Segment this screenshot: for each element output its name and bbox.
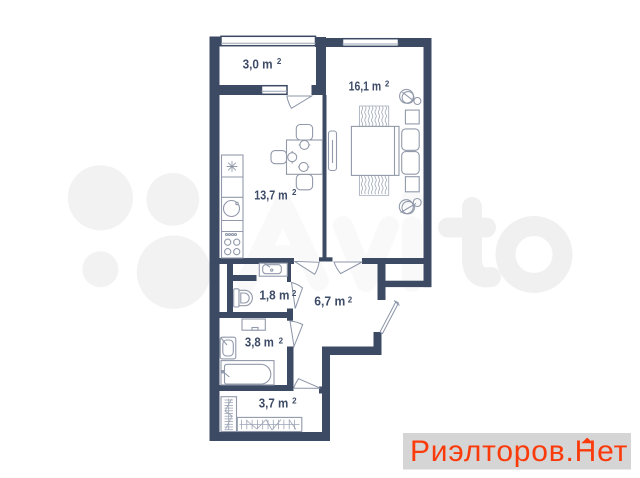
svg-text:2: 2	[385, 79, 390, 88]
svg-text:2: 2	[348, 295, 353, 304]
svg-text:2: 2	[292, 188, 297, 197]
svg-text:2: 2	[292, 397, 297, 406]
svg-text:13,7 m: 13,7 m	[254, 187, 287, 202]
svg-text:2: 2	[277, 57, 282, 66]
svg-text:3,8 m: 3,8 m	[245, 335, 274, 350]
svg-text:3,0 m: 3,0 m	[243, 56, 273, 71]
svg-text:2: 2	[279, 336, 284, 345]
svg-text:1,8 m: 1,8 m	[259, 288, 289, 303]
svg-text:2: 2	[292, 289, 297, 298]
svg-text:16,1 m: 16,1 m	[349, 78, 382, 93]
svg-text:3,7 m: 3,7 m	[259, 396, 289, 411]
svg-text:6,7 m: 6,7 m	[314, 294, 345, 309]
svg-text:Риэлторов.Нет: Риэлторов.Нет	[410, 435, 628, 468]
